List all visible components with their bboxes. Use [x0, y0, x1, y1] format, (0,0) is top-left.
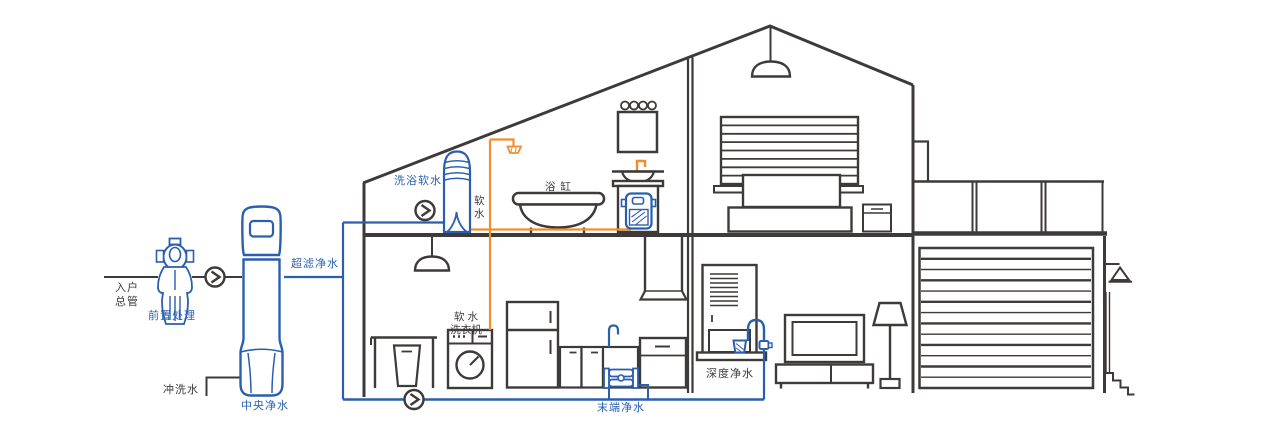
blind-slats: [722, 125, 857, 175]
tv-stand: [776, 365, 873, 389]
water-dispenser-cabinet: [697, 265, 766, 360]
label-bath-soft-water: 洗浴软水: [394, 174, 442, 188]
refrigerator: [507, 302, 558, 388]
vanity-mirror: [618, 112, 657, 152]
home-water-purification-diagram: 入户 总管 前置处理 冲洗水 中央净水 超滤净水 洗浴软水 软 水 浴 缸 软 …: [0, 0, 1280, 434]
outdoor-lamp-icon: [1109, 268, 1133, 282]
vanity-water-heater: [622, 194, 656, 229]
bedroom-pendant-lamp-icon: [752, 62, 790, 77]
label-inlet-main: 入户 总管: [115, 281, 139, 309]
label-soft-water-vertical: 软 水: [474, 195, 485, 221]
bathtub-rim: [513, 193, 604, 205]
interior-partition-wall: [688, 58, 693, 394]
label-terminal-purifier: 末端净水: [597, 401, 645, 415]
kitchen-pendant-lamp-icon: [415, 257, 449, 271]
downspout: [1106, 292, 1110, 373]
flow-arrow-icon-attic: [416, 201, 435, 220]
label-deep-purifier: 深度净水: [706, 367, 754, 381]
tv: [785, 315, 864, 362]
shower-head-icon: [508, 147, 522, 154]
flow-arrow-icon-ground: [405, 390, 424, 409]
terrace-rail-posts: [973, 182, 1103, 233]
bed: [729, 208, 852, 232]
central-purifier-unit: [241, 207, 283, 396]
vanity-lights: [621, 102, 656, 110]
flow-arrow-icon-inlet: [206, 268, 225, 287]
washing-machine: [448, 330, 492, 388]
bathtub-bowl: [520, 205, 597, 228]
kitchen-cabinets: [560, 347, 603, 388]
vanity-faucet-icon: [637, 161, 645, 171]
bed-headboard: [743, 175, 840, 207]
lamp-shade: [874, 303, 907, 325]
floor-lamp: [874, 303, 907, 388]
shower-softener-tank: [444, 152, 470, 233]
kitchen-furniture: [371, 236, 687, 388]
label-pre-treatment: 前置处理: [148, 309, 196, 323]
tv-screen: [793, 322, 857, 355]
flush-drain-pipe: [207, 378, 241, 397]
kitchen-sink-faucet-icon: [609, 326, 618, 348]
house-cutaway-drawing: [0, 0, 1280, 434]
label-soft-water-washer: 软 水 洗衣机: [443, 311, 489, 337]
stove-counter: [640, 338, 686, 388]
label-flush-water: 冲洗水: [163, 383, 199, 397]
bedroom-furniture: [714, 27, 891, 232]
label-ultrafiltration: 超滤净水: [291, 257, 339, 271]
range-hood: [641, 236, 687, 300]
label-central-purifier: 中央净水: [241, 399, 289, 413]
terminal-purifier-unit: [604, 369, 638, 389]
chimney: [914, 142, 928, 182]
label-bathtub: 浴 缸: [545, 181, 572, 194]
dispenser-tabletop: [697, 353, 766, 361]
entry-steps: [1106, 373, 1135, 395]
